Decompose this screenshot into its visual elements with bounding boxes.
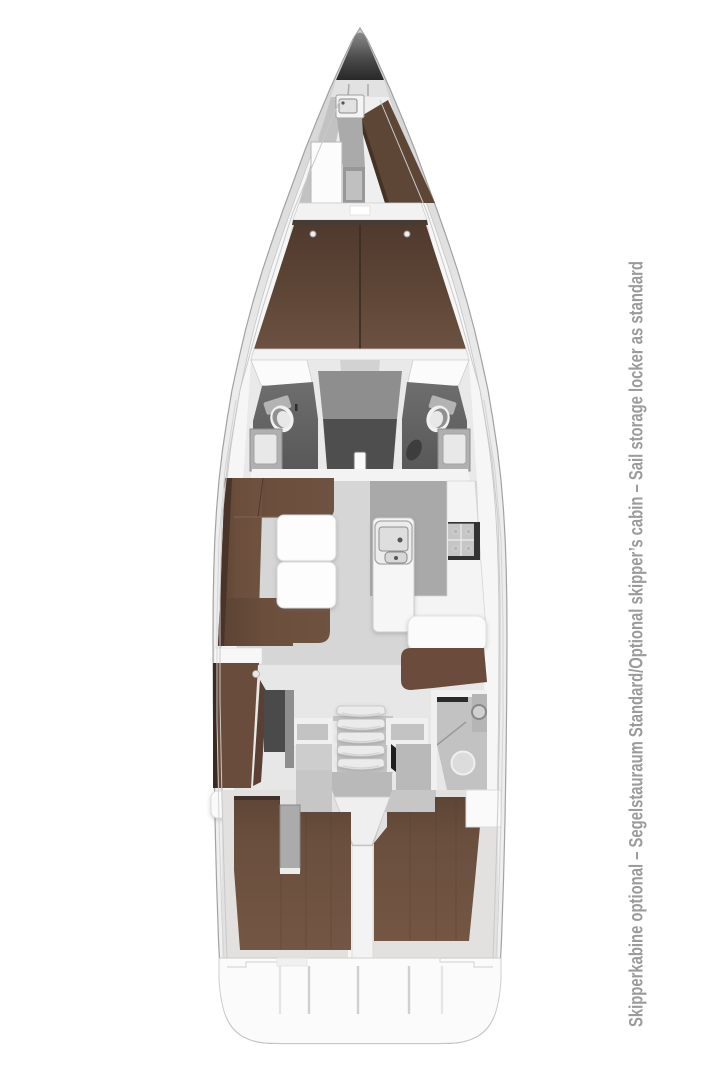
svg-text:Skipperkabine optional – Segel: Skipperkabine optional – Segelstauraum S… [627,261,648,1027]
